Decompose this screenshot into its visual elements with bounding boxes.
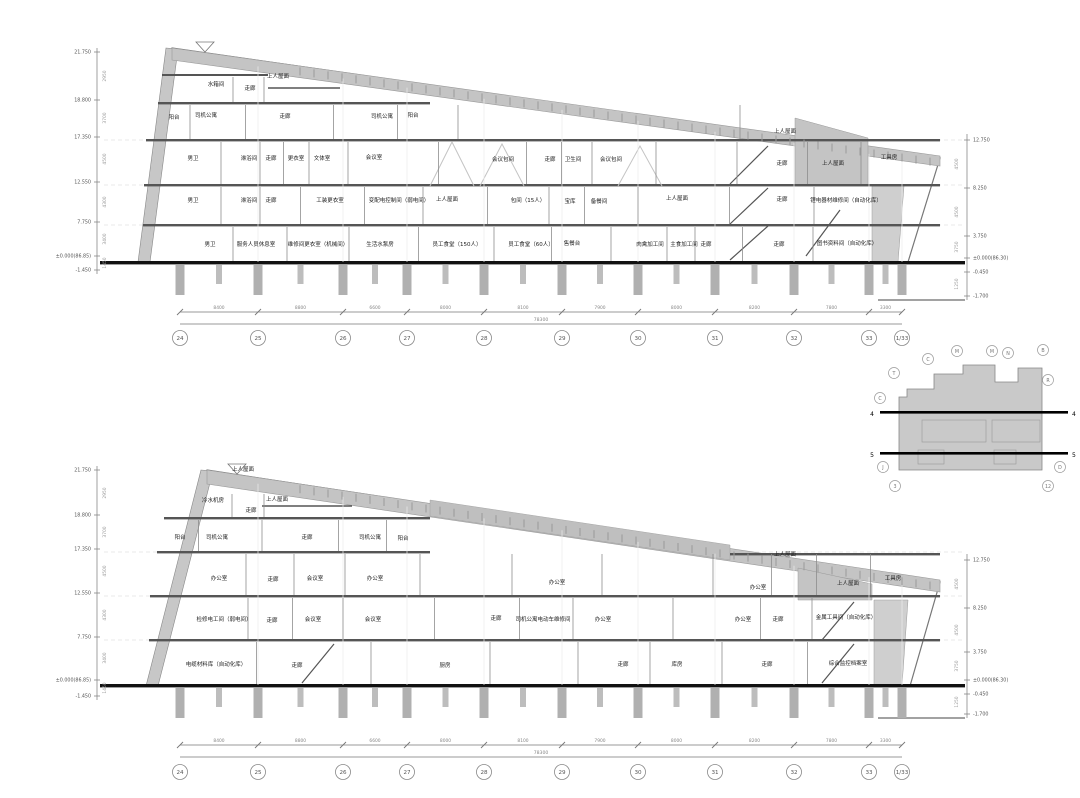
grid-bubble-label: 28 xyxy=(480,770,488,776)
foundation-pile xyxy=(403,688,412,718)
elevation-segment-dim: 4500 xyxy=(954,158,960,169)
key-plan-grid-bubble-label: J xyxy=(881,465,883,471)
room-label: 上人屋面 xyxy=(666,194,689,202)
foundation-pile-small xyxy=(829,265,835,284)
room-label: 售餐台 xyxy=(564,239,581,247)
foundation-pile-small xyxy=(520,688,526,707)
room-label: 会议室 xyxy=(305,615,322,623)
room-label: 走廊 xyxy=(773,240,785,248)
elevation-level-label: 18.800 xyxy=(74,513,91,519)
room-label: 走廊 xyxy=(267,575,279,583)
room-label: 会议包间 xyxy=(492,155,514,163)
key-plan-grid-bubble-label: 3 xyxy=(893,484,896,490)
elevation-level-label: ±0.000(86.30) xyxy=(973,256,1008,262)
foundation-pile-small xyxy=(752,688,758,707)
foundation-pile xyxy=(634,265,643,295)
room-label: 阳台 xyxy=(174,533,186,541)
room-label: 主食加工间 xyxy=(670,240,698,248)
elevation-segment-dim: 4500 xyxy=(954,578,960,589)
bay-dimension: 3300 xyxy=(880,738,891,744)
grid-bubble-label: 32 xyxy=(790,770,797,776)
foundation-pile-small xyxy=(372,265,378,284)
elevation-segment-dim: 4300 xyxy=(102,196,108,207)
room-label: 淋浴间 xyxy=(241,196,258,204)
room-label: 员工食堂（150人） xyxy=(433,240,482,248)
elevation-segment-dim: 3700 xyxy=(102,112,108,123)
elevation-level-label: -0.450 xyxy=(973,270,988,276)
elevation-level-label: 12.550 xyxy=(74,180,91,186)
room-label: 司机公寓 xyxy=(195,111,218,119)
foundation-pile xyxy=(176,688,185,718)
foundation-pile xyxy=(480,265,489,295)
elevation-segment-dim: 4300 xyxy=(102,609,108,620)
room-label: 阳台 xyxy=(407,111,419,119)
key-plan-section-line-5 xyxy=(880,452,1068,455)
key-plan-grid-bubble-label: M xyxy=(955,349,959,355)
elevation-level-label: -1.700 xyxy=(973,294,988,300)
room-label: 办公室 xyxy=(367,574,384,582)
room-label: 司机公寓 xyxy=(371,112,394,120)
bay-dimension: 8200 xyxy=(749,305,760,311)
room-label: 上人屋面 xyxy=(774,550,797,558)
elevation-segment-dim: 2950 xyxy=(102,487,108,498)
room-label: 走廊 xyxy=(265,196,277,204)
room-label: 卫生间 xyxy=(565,155,582,163)
grid-bubble-label: 33 xyxy=(865,770,873,776)
room-label: 走廊 xyxy=(617,660,629,668)
room-label: 走廊 xyxy=(544,155,556,163)
elevation-level-label: 3.750 xyxy=(973,234,987,240)
room-label: 包间（15人） xyxy=(511,196,546,204)
room-label: 库房 xyxy=(671,660,683,668)
elevation-level-label: 7.750 xyxy=(77,635,91,641)
bay-dimension: 6600 xyxy=(369,305,380,311)
room-label: 备餐间 xyxy=(591,197,608,205)
elevation-level-label: 12.750 xyxy=(973,138,990,144)
bay-dimension: 7900 xyxy=(594,305,605,311)
foundation-pile-small xyxy=(597,265,603,284)
foundation-pile-small xyxy=(520,265,526,284)
elevation-level-label: 21.750 xyxy=(74,468,91,474)
room-label: 金属工具间（自动化库） xyxy=(816,613,877,621)
lower-section-drawing xyxy=(100,464,965,718)
grid-bubble-label: 29 xyxy=(558,770,566,776)
foundation-pile xyxy=(558,265,567,295)
room-label: 厨房 xyxy=(439,661,451,669)
key-plan-grid-bubble-label: M xyxy=(990,349,994,355)
room-label: 男卫 xyxy=(187,197,199,204)
room-label: 走廊 xyxy=(265,154,277,162)
foundation-pile xyxy=(339,265,348,295)
grid-bubble-label: 33 xyxy=(865,336,873,342)
room-label: 上人屋面 xyxy=(822,159,845,167)
room-label: 走廊 xyxy=(301,533,313,541)
elevation-segment-dim: 3400 xyxy=(102,233,108,244)
room-label: 办公室 xyxy=(735,615,752,623)
key-plan xyxy=(880,365,1068,470)
grid-bubble-label: 27 xyxy=(403,336,411,342)
grid-bubble-label: 25 xyxy=(254,336,262,342)
elevation-level-label: -1.450 xyxy=(76,268,91,274)
room-label: 上人屋面 xyxy=(232,465,255,473)
key-plan-grid-bubble-label: D xyxy=(1058,465,1062,471)
room-label: 会议包间 xyxy=(600,155,622,163)
room-label: 电缆材料库（自动化库） xyxy=(186,660,247,668)
bay-dimension: 8000 xyxy=(440,738,451,744)
foundation-pile xyxy=(711,688,720,718)
room-label: 冷水机房 xyxy=(202,496,225,504)
foundation-pile xyxy=(865,688,874,718)
room-label: 阳台 xyxy=(397,534,409,542)
bay-dimension: 7800 xyxy=(826,738,837,744)
total-dimension: 78300 xyxy=(534,750,549,756)
section-cut-label: 5 xyxy=(870,452,874,459)
foundation-pile-small xyxy=(216,688,222,707)
foundation-pile-small xyxy=(372,688,378,707)
foundation-pile-small xyxy=(443,688,449,707)
elevation-level-label: ±0.000(86.85) xyxy=(56,678,91,684)
foundation-pile xyxy=(790,688,799,718)
grid-bubble-label: 30 xyxy=(634,336,642,342)
bay-dimension: 8400 xyxy=(213,738,224,744)
room-label: 司机公寓 xyxy=(359,533,382,541)
grid-bubble-label: 30 xyxy=(634,770,642,776)
bay-dimension: 8400 xyxy=(213,305,224,311)
bay-dimension: 7800 xyxy=(826,305,837,311)
elevation-level-label: 18.800 xyxy=(74,98,91,104)
elevation-level-label: -1.700 xyxy=(973,712,988,718)
grid-bubble-label: 26 xyxy=(339,336,347,342)
room-label: 文体室 xyxy=(314,154,331,162)
room-label: 办公室 xyxy=(211,574,228,582)
room-label: 走廊 xyxy=(776,195,788,203)
section-cut-label: 4 xyxy=(870,411,874,418)
room-label: 宝库 xyxy=(564,197,576,205)
bay-dimension: 3300 xyxy=(880,305,891,311)
room-label: 上人屋面 xyxy=(267,72,290,80)
elevation-level-label: ±0.000(86.30) xyxy=(973,678,1008,684)
key-plan-section-line-4 xyxy=(880,411,1068,414)
foundation-pile-small xyxy=(674,265,680,284)
upper-roof-peak-marker xyxy=(196,42,214,52)
bay-dimension: 8100 xyxy=(517,305,528,311)
foundation-pile-small xyxy=(597,688,603,707)
room-label: 上人屋面 xyxy=(436,195,459,203)
room-label: 锂电器材维修间（自动化库） xyxy=(810,196,882,204)
elevation-segment-dim: 4500 xyxy=(102,153,108,164)
room-label: 走廊 xyxy=(700,240,712,248)
room-label: 走廊 xyxy=(776,159,788,167)
room-label: 男卫 xyxy=(204,241,216,248)
foundation-pile xyxy=(254,265,263,295)
drawing-sheet: 水箱间走廊上人屋面阳台司机公寓走廊司机公寓阳台上人屋面男卫淋浴间走廊更衣室文体室… xyxy=(0,0,1080,798)
foundation-pile-small xyxy=(752,265,758,284)
elevation-segment-dim: 3400 xyxy=(102,652,108,663)
foundation-pile xyxy=(711,265,720,295)
foundation-pile xyxy=(403,265,412,295)
foundation-pile xyxy=(176,265,185,295)
foundation-pile xyxy=(790,265,799,295)
grid-bubble-label: 28 xyxy=(480,336,488,342)
room-label: 男卫 xyxy=(187,155,199,162)
grid-bubble-label: 31 xyxy=(711,336,719,342)
bay-dimension: 8000 xyxy=(440,305,451,311)
room-label: 阳台 xyxy=(168,113,180,121)
room-label: 司机公寓电动车维修间 xyxy=(515,615,570,623)
room-label: 图书资料间（自动化库） xyxy=(817,239,878,247)
elevation-level-label: 3.750 xyxy=(973,650,987,656)
bay-dimension: 7900 xyxy=(594,738,605,744)
foundation-pile xyxy=(254,688,263,718)
elevation-segment-dim: 3750 xyxy=(954,241,960,252)
elevation-segment-dim: 3700 xyxy=(102,526,108,537)
room-label: 工装更衣室 xyxy=(316,196,344,204)
room-label: 更衣室 xyxy=(288,154,305,162)
elevation-segment-dim: 1250 xyxy=(954,696,960,707)
total-dimension: 78300 xyxy=(534,317,549,323)
grid-bubble-label: 26 xyxy=(339,770,347,776)
elevation-level-label: 12.750 xyxy=(973,558,990,564)
key-plan-grid-bubble-label: B xyxy=(1041,348,1044,354)
upper-ground-line xyxy=(100,261,965,264)
room-label: 服务人员休息室 xyxy=(237,240,276,248)
room-label: 检修电工间（弱电间） xyxy=(196,615,251,623)
section-cut-label: 5 xyxy=(1072,452,1076,459)
section-drawing-canvas: 水箱间走廊上人屋面阳台司机公寓走廊司机公寓阳台上人屋面男卫淋浴间走廊更衣室文体室… xyxy=(0,0,1080,798)
elevation-segment-dim: 1450 xyxy=(102,257,108,268)
grid-bubble-label: 1/33 xyxy=(896,336,909,342)
elevation-level-label: 12.550 xyxy=(74,591,91,597)
foundation-pile-small xyxy=(216,265,222,284)
room-label: 工具房 xyxy=(885,574,902,582)
room-label: 走廊 xyxy=(291,661,303,669)
room-label: 上人屋面 xyxy=(266,495,289,503)
room-label: 综合监控档案室 xyxy=(829,659,868,667)
grid-bubble-label: 27 xyxy=(403,770,411,776)
room-label: 员工食堂（60人） xyxy=(508,240,554,248)
elevation-segment-dim: 1250 xyxy=(954,278,960,289)
room-label: 走廊 xyxy=(772,615,784,623)
bay-dimension: 8100 xyxy=(517,738,528,744)
foundation-pile-small xyxy=(829,688,835,707)
room-label: 维修间更衣室（机械间） xyxy=(288,240,349,248)
elevation-level-label: -1.450 xyxy=(76,694,91,700)
foundation-pile xyxy=(898,265,907,295)
bay-dimension: 8800 xyxy=(295,305,306,311)
room-label: 走廊 xyxy=(244,84,256,92)
foundation-pile xyxy=(634,688,643,718)
elevation-level-label: 17.350 xyxy=(74,547,91,553)
elevation-level-label: 7.750 xyxy=(77,220,91,226)
lower-ground-line xyxy=(100,684,965,687)
foundation-pile-small xyxy=(298,265,304,284)
elevation-level-label: 8.250 xyxy=(973,186,987,192)
upper-section-drawing xyxy=(100,42,965,300)
room-label: 办公室 xyxy=(750,583,767,591)
room-label: 工具房 xyxy=(881,153,898,161)
key-plan-grid-bubble-label: 12 xyxy=(1045,484,1051,490)
elevation-level-label: 17.350 xyxy=(74,135,91,141)
elevation-level-label: ±0.000(86.85) xyxy=(56,254,91,260)
grid-bubble-label: 31 xyxy=(711,770,719,776)
room-label: 会议室 xyxy=(307,574,324,582)
elevation-segment-dim: 2950 xyxy=(102,70,108,81)
upper-stair-bulkhead xyxy=(795,118,868,186)
room-label: 走廊 xyxy=(761,660,773,668)
room-label: 会议室 xyxy=(366,153,383,161)
elevation-level-label: -0.450 xyxy=(973,692,988,698)
room-label: 上人屋面 xyxy=(774,127,797,135)
room-label: 淋浴间 xyxy=(241,154,258,162)
room-label: 司机公寓 xyxy=(206,533,229,541)
key-plan-grid-bubble-label: T xyxy=(892,371,896,377)
bay-dimension: 8200 xyxy=(749,738,760,744)
foundation-pile xyxy=(898,688,907,718)
room-label: 生活水泵房 xyxy=(366,240,394,248)
grid-bubble-label: 24 xyxy=(176,770,184,776)
foundation-pile xyxy=(558,688,567,718)
room-label: 走廊 xyxy=(490,614,502,622)
elevation-segment-dim: 3750 xyxy=(954,660,960,671)
grid-bubble-label: 32 xyxy=(790,336,797,342)
room-label: 变配电控制间（弱电间） xyxy=(369,196,430,204)
room-label: 办公室 xyxy=(595,615,612,623)
room-label: 走廊 xyxy=(266,616,278,624)
elevation-segment-dim: 4500 xyxy=(102,565,108,576)
foundation-pile xyxy=(865,265,874,295)
foundation-pile-small xyxy=(298,688,304,707)
bay-dimension: 8800 xyxy=(295,738,306,744)
foundation-pile xyxy=(339,688,348,718)
bay-dimension: 8000 xyxy=(671,738,682,744)
foundation-pile-small xyxy=(883,688,889,707)
key-plan-grid-bubble-label: N xyxy=(1006,351,1010,357)
grid-bubble-label: 29 xyxy=(558,336,566,342)
room-label: 上人屋面 xyxy=(837,579,860,587)
grid-bubble-label: 1/33 xyxy=(896,770,909,776)
elevation-level-label: 8.250 xyxy=(973,606,987,612)
elevation-segment-dim: 1450 xyxy=(102,682,108,693)
elevation-segment-dim: 4500 xyxy=(954,206,960,217)
room-label: 会议室 xyxy=(365,615,382,623)
elevation-level-label: 21.750 xyxy=(74,50,91,56)
grid-bubble-label: 25 xyxy=(254,770,262,776)
room-label: 办公室 xyxy=(549,578,566,586)
grid-bubble-label: 24 xyxy=(176,336,184,342)
room-label: 水箱间 xyxy=(208,80,225,88)
bay-dimension: 8000 xyxy=(671,305,682,311)
foundation-pile-small xyxy=(443,265,449,284)
room-label: 走廊 xyxy=(279,112,291,120)
foundation-pile-small xyxy=(883,265,889,284)
foundation-pile xyxy=(480,688,489,718)
section-cut-label: 4 xyxy=(1072,411,1076,418)
room-label: 走廊 xyxy=(245,506,257,514)
foundation-pile-small xyxy=(674,688,680,707)
bay-dimension: 6600 xyxy=(369,738,380,744)
elevation-segment-dim: 4500 xyxy=(954,624,960,635)
room-label: 肉禽加工间 xyxy=(636,240,664,248)
lower-right-wall xyxy=(874,600,908,686)
